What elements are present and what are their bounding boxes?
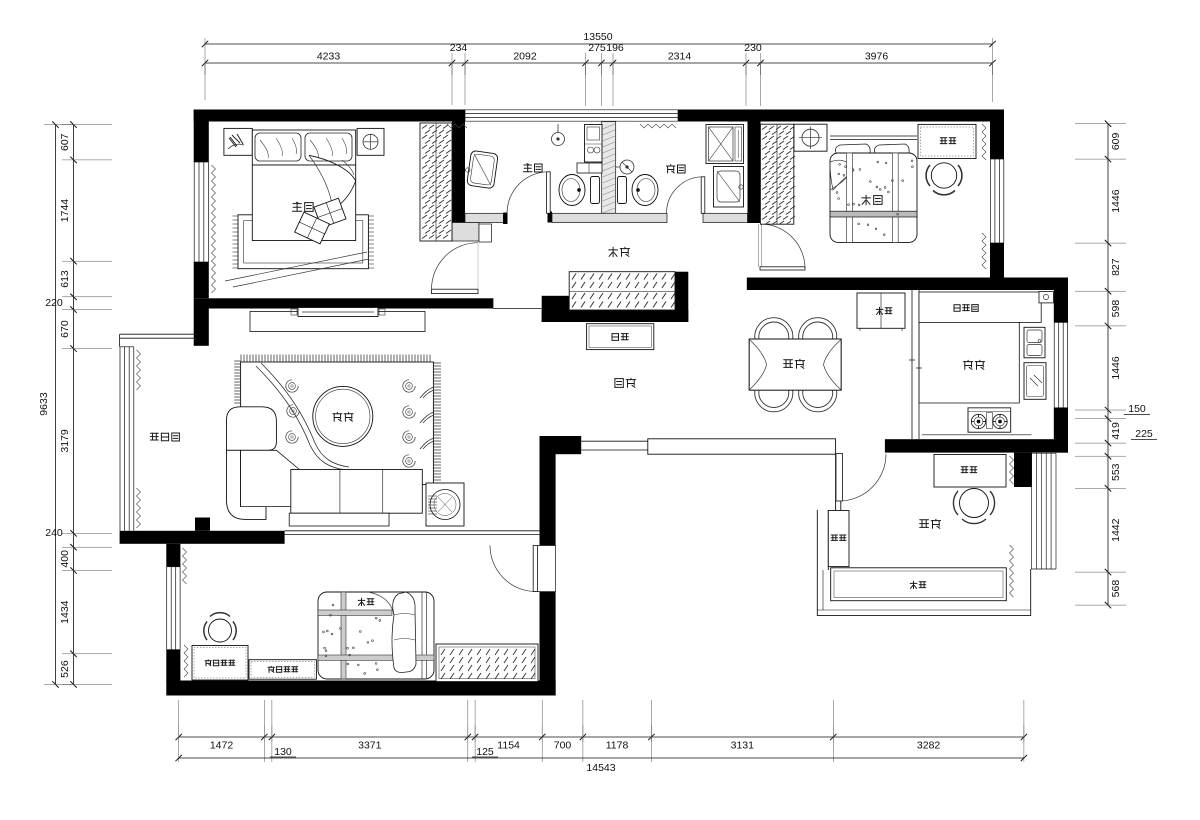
svg-text:2314: 2314	[668, 51, 692, 63]
svg-text:14543: 14543	[586, 762, 615, 774]
svg-text:275: 275	[588, 42, 606, 54]
svg-text:3179: 3179	[59, 429, 71, 453]
svg-text:125: 125	[476, 746, 494, 758]
svg-text:3282: 3282	[917, 740, 941, 752]
svg-text:568: 568	[1110, 580, 1122, 598]
svg-text:1744: 1744	[59, 199, 71, 223]
svg-text:526: 526	[59, 660, 71, 678]
svg-text:1434: 1434	[59, 600, 71, 624]
svg-text:553: 553	[1110, 463, 1122, 481]
svg-text:3131: 3131	[731, 740, 755, 752]
svg-text:1472: 1472	[210, 740, 234, 752]
svg-text:4233: 4233	[317, 51, 341, 63]
svg-text:130: 130	[274, 746, 292, 758]
svg-text:607: 607	[59, 133, 71, 151]
svg-text:1178: 1178	[606, 740, 629, 752]
svg-text:220: 220	[45, 297, 63, 309]
svg-text:1446: 1446	[1110, 189, 1122, 213]
svg-text:230: 230	[744, 42, 762, 54]
svg-text:240: 240	[45, 527, 63, 539]
svg-text:1446: 1446	[1110, 356, 1122, 380]
svg-text:225: 225	[1135, 428, 1153, 440]
svg-text:700: 700	[554, 740, 572, 752]
svg-text:1154: 1154	[497, 740, 520, 752]
svg-text:598: 598	[1110, 300, 1122, 318]
svg-text:196: 196	[606, 42, 624, 54]
svg-text:419: 419	[1110, 422, 1122, 440]
svg-text:9633: 9633	[38, 392, 50, 416]
svg-text:1442: 1442	[1110, 518, 1122, 542]
svg-text:827: 827	[1110, 258, 1122, 276]
svg-text:670: 670	[59, 320, 71, 338]
svg-text:2092: 2092	[513, 51, 537, 63]
svg-text:613: 613	[59, 270, 71, 288]
svg-text:3976: 3976	[865, 51, 889, 63]
svg-text:3371: 3371	[358, 740, 382, 752]
svg-text:609: 609	[1110, 132, 1122, 150]
svg-text:234: 234	[450, 42, 468, 54]
svg-text:400: 400	[59, 550, 71, 568]
svg-text:150: 150	[1128, 403, 1146, 415]
